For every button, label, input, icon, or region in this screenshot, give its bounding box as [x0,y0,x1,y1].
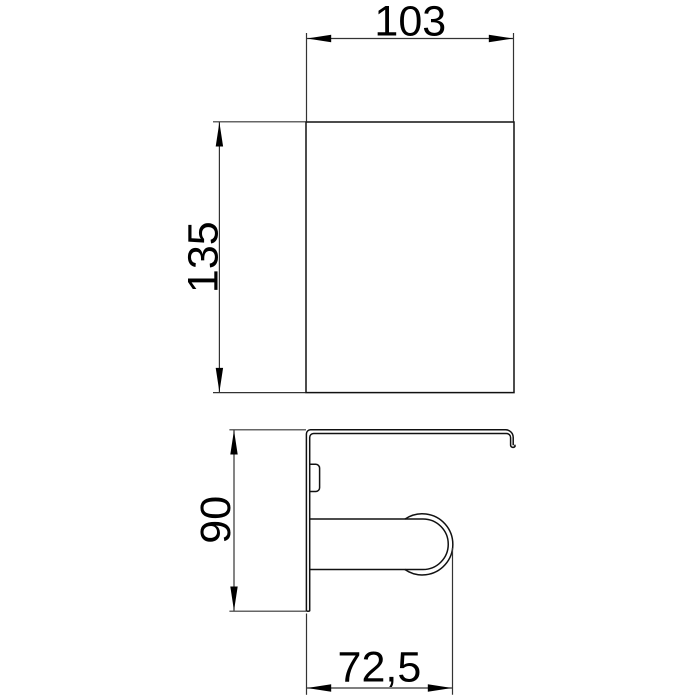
svg-text:103: 103 [374,0,446,45]
svg-text:72,5: 72,5 [338,643,422,691]
svg-text:135: 135 [179,221,227,293]
svg-text:90: 90 [192,496,240,544]
